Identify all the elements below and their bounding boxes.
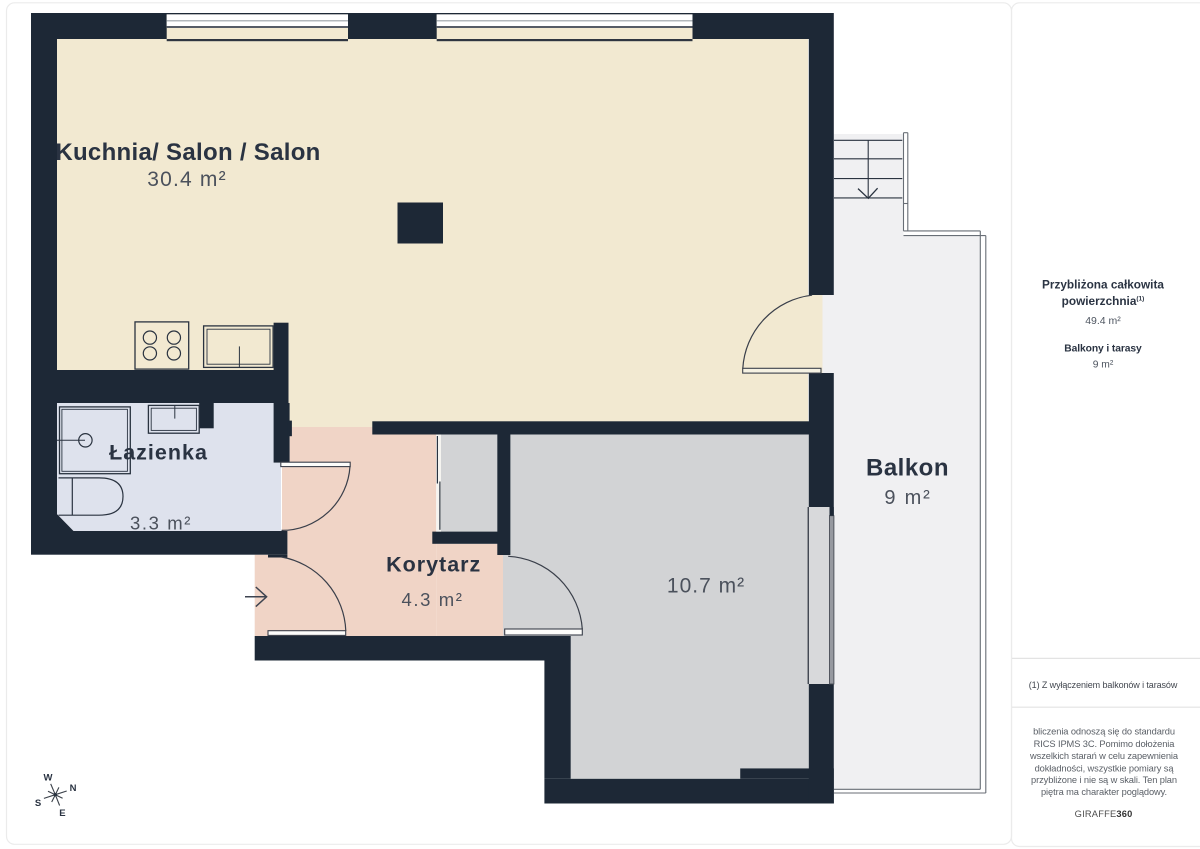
svg-text:bliczenia odnoszą się do stand: bliczenia odnoszą się do standardu	[1033, 727, 1175, 737]
svg-text:9 m²: 9 m²	[1093, 360, 1114, 371]
svg-text:E: E	[59, 808, 65, 819]
svg-text:Korytarz: Korytarz	[386, 553, 481, 577]
svg-text:Przybliżona całkowita: Przybliżona całkowita	[1042, 277, 1164, 291]
svg-text:piętra ma charakter poglądowy.: piętra ma charakter poglądowy.	[1041, 787, 1167, 797]
svg-text:3.3 m²: 3.3 m²	[130, 513, 192, 534]
svg-text:4.3 m²: 4.3 m²	[401, 589, 463, 610]
svg-text:przybliżone i nie są w skali.: przybliżone i nie są w skali. Ten plan	[1031, 775, 1177, 785]
svg-text:Balkon: Balkon	[866, 455, 949, 482]
svg-text:Łazienka: Łazienka	[109, 441, 208, 465]
svg-text:wszelkich starań w celu zapewn: wszelkich starań w celu zapewnienia	[1029, 751, 1179, 761]
svg-text:N: N	[70, 783, 77, 794]
svg-text:S: S	[35, 798, 41, 809]
svg-text:Kuchnia/ Salon / Salon: Kuchnia/ Salon / Salon	[55, 139, 320, 166]
svg-text:30.4 m²: 30.4 m²	[147, 168, 227, 191]
svg-text:10.7 m²: 10.7 m²	[667, 575, 745, 598]
svg-text:dokładności, wszystkie pomiary: dokładności, wszystkie pomiary są	[1035, 763, 1175, 773]
svg-text:Balkony i tarasy: Balkony i tarasy	[1064, 343, 1142, 354]
svg-text:RICS IPMS 3C. Pomimo dołożenia: RICS IPMS 3C. Pomimo dołożenia	[1034, 739, 1176, 749]
svg-text:9 m²: 9 m²	[884, 487, 931, 509]
svg-text:49.4 m²: 49.4 m²	[1085, 315, 1121, 327]
svg-text:GIRAFFE360: GIRAFFE360	[1075, 809, 1133, 819]
svg-text:powierzchnia(1): powierzchnia(1)	[1062, 294, 1145, 308]
svg-text:(1) Z wyłączeniem balkonów i t: (1) Z wyłączeniem balkonów i tarasów	[1029, 680, 1178, 690]
svg-text:W: W	[44, 773, 53, 784]
